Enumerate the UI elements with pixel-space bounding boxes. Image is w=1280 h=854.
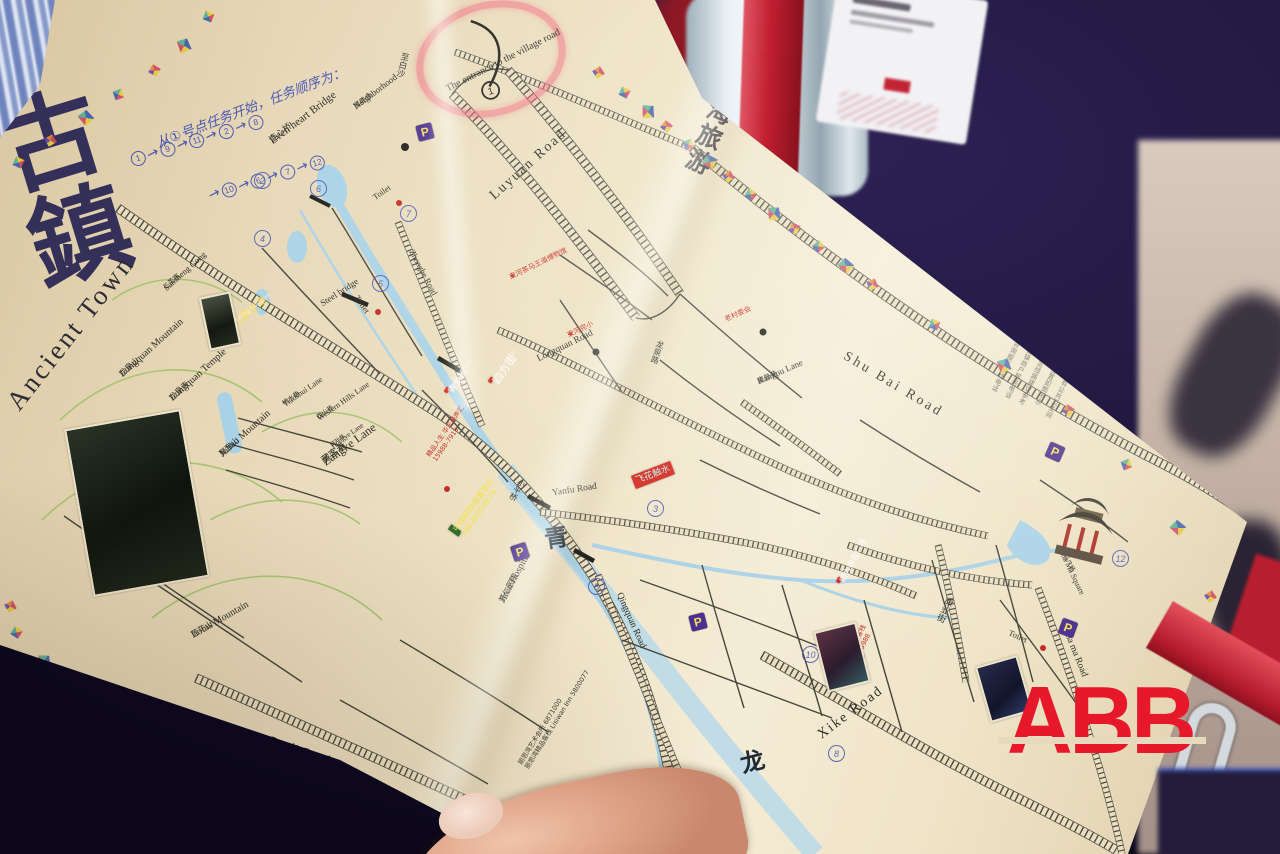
start-point-number: 1	[487, 86, 496, 98]
abb-logo-cut-line	[998, 737, 1206, 744]
bird-icon	[242, 777, 261, 796]
photo-of-held-map: .rdO{stroke:#474740;stroke-width:9.5;fil…	[0, 0, 1280, 854]
kite-icon	[280, 800, 297, 817]
abb-logo-watermark: ABB	[1007, 682, 1193, 761]
route-mark: 12	[1112, 550, 1129, 567]
kite-icon	[103, 697, 118, 712]
route-mark: 4	[254, 230, 271, 247]
route-mark: 6	[310, 180, 327, 197]
route-mark: 7	[400, 205, 417, 222]
route-mark: 3	[647, 500, 664, 517]
kite-icon	[311, 815, 326, 830]
route-mark: 8	[828, 745, 845, 762]
dark-bag	[1158, 768, 1280, 854]
route-mark: 5	[588, 578, 605, 595]
route-mark: 5	[372, 275, 389, 292]
bird-icon	[147, 724, 165, 742]
bird-icon	[346, 829, 365, 848]
kite-icon	[66, 674, 83, 691]
kite-icon	[382, 843, 398, 854]
kite-icon	[218, 758, 234, 774]
badge-red-mark	[883, 78, 911, 94]
lanyard-badge-card	[816, 0, 989, 145]
kite-icon	[180, 740, 197, 757]
route-mark: 2	[254, 172, 271, 189]
